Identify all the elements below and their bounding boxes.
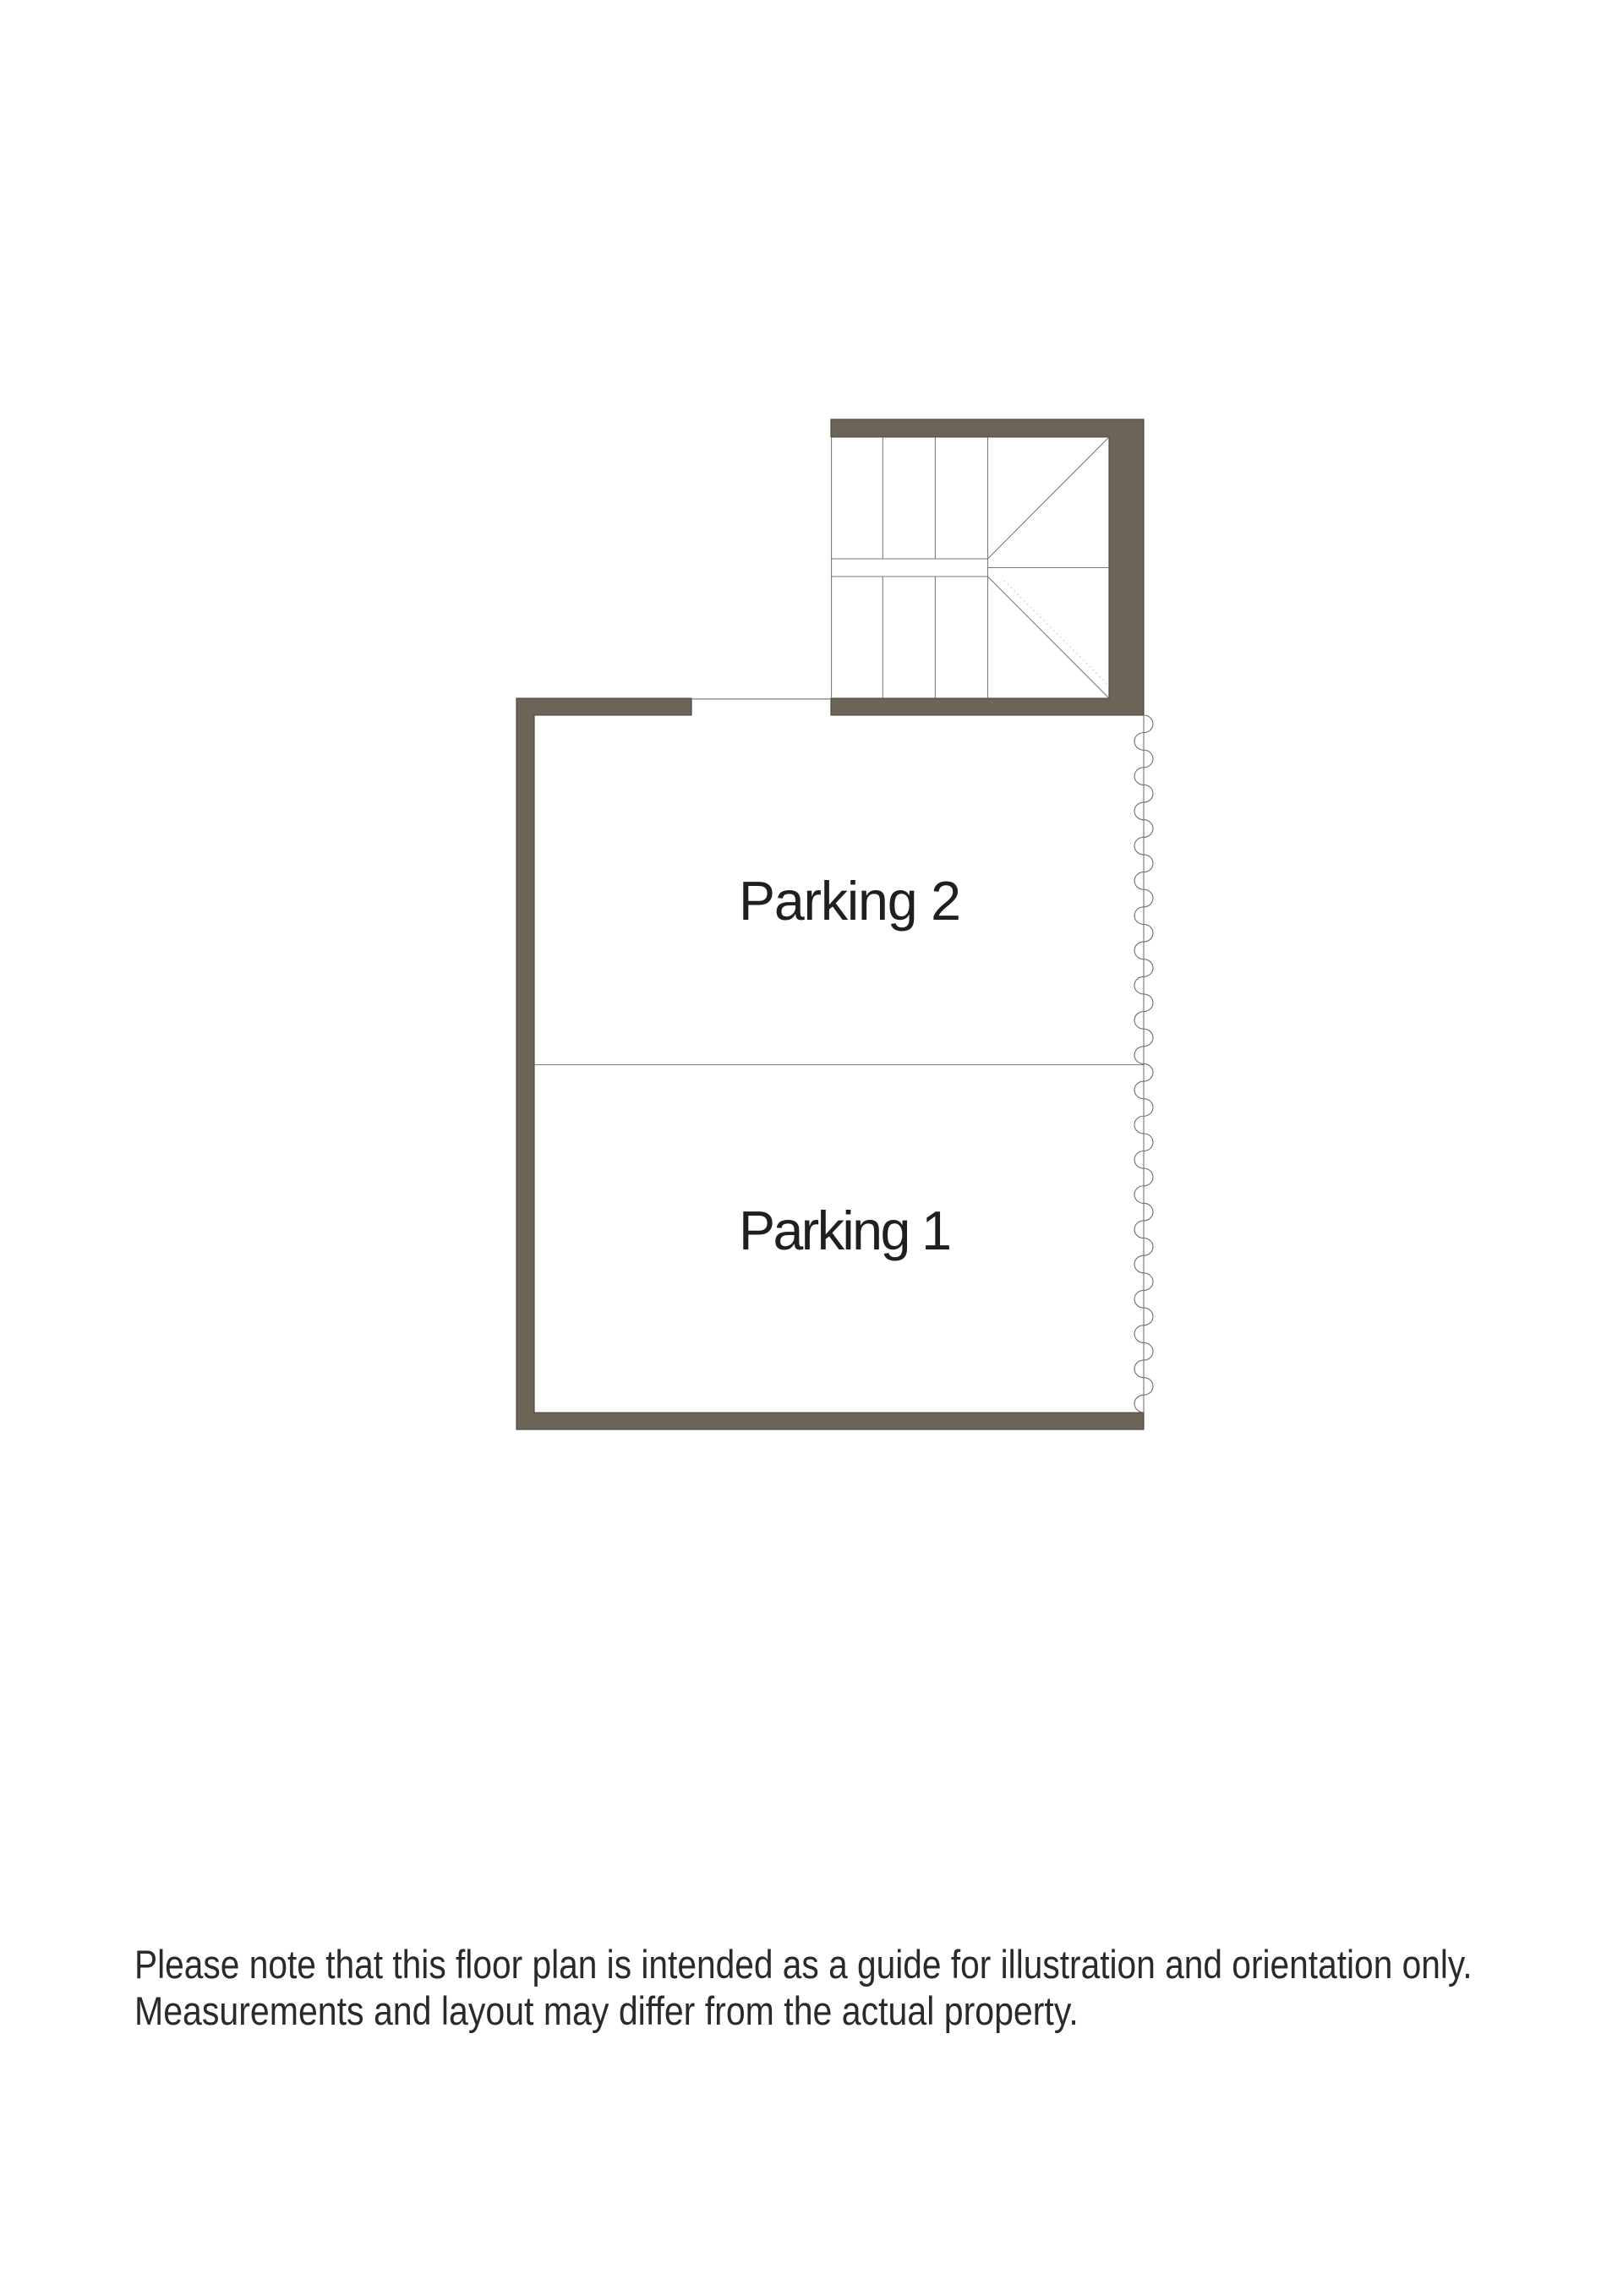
- svg-text:Please note that this floor pl: Please note that this floor plan is inte…: [134, 1943, 1473, 1987]
- svg-text:Measurements and layout may di: Measurements and layout may differ from …: [134, 1989, 1079, 2033]
- svg-text:Parking 1: Parking 1: [739, 1200, 952, 1261]
- svg-text:Parking 2: Parking 2: [739, 871, 961, 932]
